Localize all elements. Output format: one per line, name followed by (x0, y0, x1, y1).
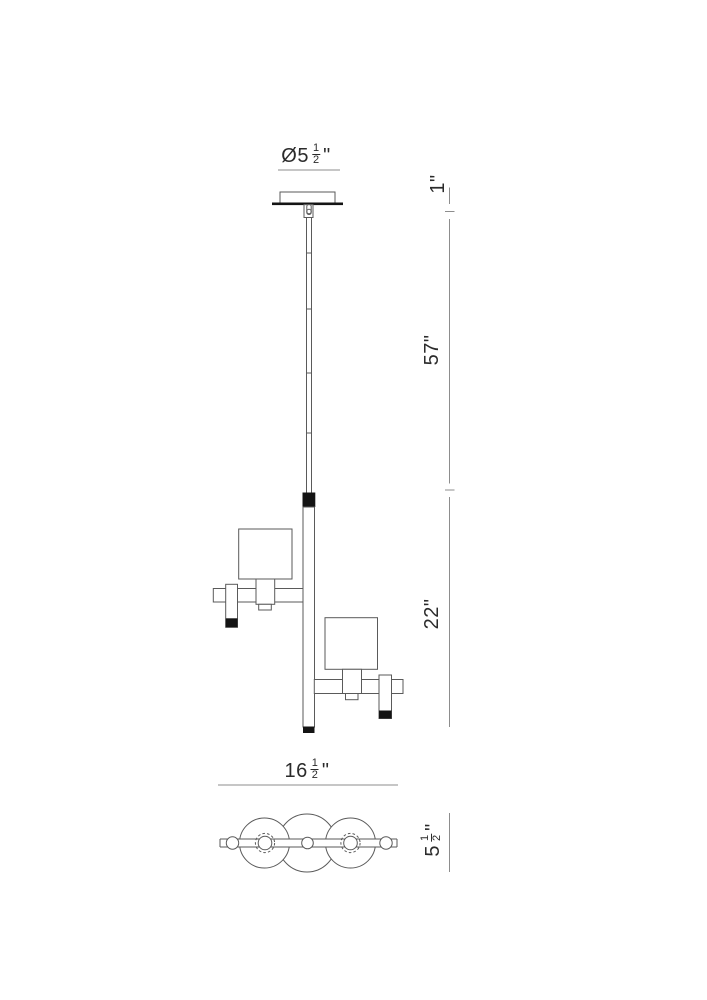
canopy-diameter-value: Ø5 (281, 146, 309, 166)
right-cylinder-cap (379, 711, 392, 719)
plan-left-end-cap (226, 837, 238, 849)
fixture-depth-label: 5 1 2 " (423, 823, 443, 856)
canopy-diameter-label: Ø5 1 2 " (281, 146, 330, 166)
fixture-width-label: 16 1 2 " (285, 761, 330, 781)
plan-right-socket (344, 836, 358, 850)
right-socket (343, 669, 362, 693)
fixture-depth-unit: " (423, 823, 443, 831)
right-lamp-assembly (314, 618, 403, 719)
plan-view (220, 814, 397, 872)
tube-bottom-cap (303, 727, 315, 734)
left-cylinder-cap (226, 618, 238, 627)
canopy-diameter-unit: " (323, 146, 331, 166)
right-socket-notch (346, 694, 359, 700)
fixture-depth-fraction: 1 2 (420, 834, 442, 842)
fixture-width-value: 16 (285, 761, 308, 781)
fixture-width-unit: " (322, 761, 330, 781)
elevation-view (213, 192, 403, 733)
upper-stem (307, 218, 312, 494)
plan-right-end-cap (380, 837, 392, 849)
stem-collar-band (303, 493, 316, 508)
left-lamp-assembly (213, 529, 303, 627)
center-tube (303, 507, 315, 727)
swivel-ball (307, 209, 311, 213)
canopy-diameter-fraction: 1 2 (312, 143, 320, 165)
fixture-depth-value: 5 (423, 845, 443, 857)
left-shade (239, 529, 292, 579)
fixture-width-fraction: 1 2 (311, 758, 319, 780)
left-socket (256, 579, 275, 604)
plan-left-socket (258, 836, 272, 850)
body-height-label: 22" (422, 599, 442, 630)
canopy-body (280, 192, 335, 203)
technical-drawing-canvas: Ø5 1 2 " 1" 57" 22" 16 1 2 " 5 1 2 " (0, 0, 707, 1000)
fixture-line-art (0, 0, 707, 1000)
drop-overall-label: 57" (422, 335, 442, 366)
right-shade (325, 618, 378, 670)
left-socket-notch (259, 604, 272, 610)
drop-top-label: 1" (428, 174, 448, 193)
plan-center-stem-circle (302, 837, 314, 849)
dimension-lines (218, 170, 455, 872)
